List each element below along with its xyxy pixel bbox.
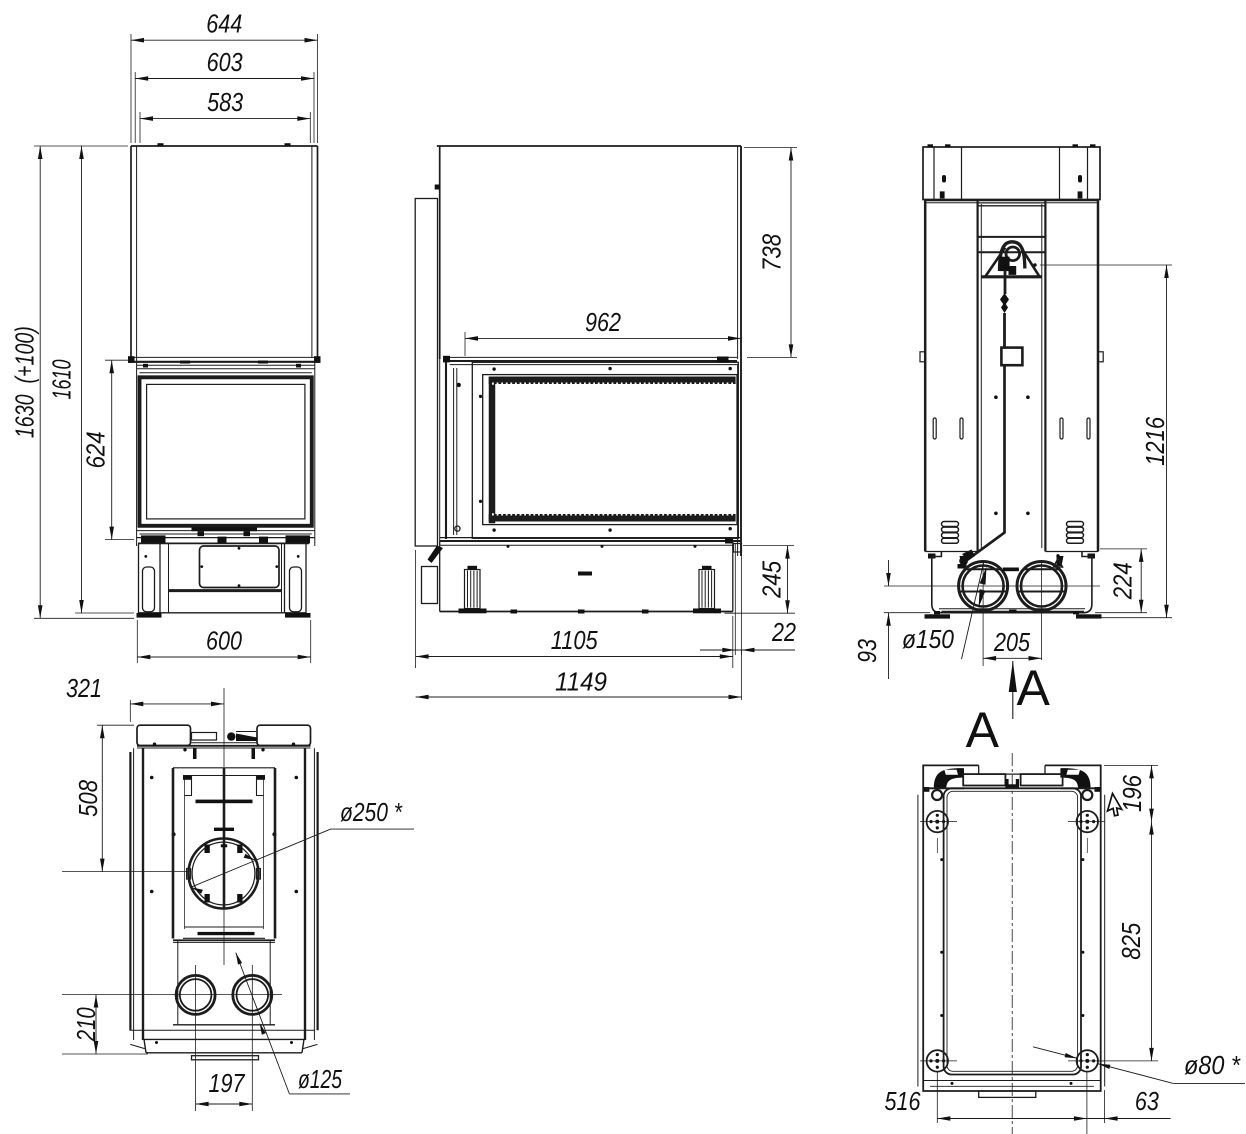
svg-text:ø125: ø125 (298, 1064, 342, 1094)
svg-text:1610: 1610 (47, 359, 77, 399)
svg-text:603: 603 (207, 47, 243, 77)
svg-text:583: 583 (207, 87, 243, 117)
svg-text:A: A (966, 702, 1000, 758)
svg-text:ø150: ø150 (902, 624, 954, 654)
svg-text:508: 508 (73, 779, 103, 816)
svg-text:22: 22 (771, 617, 796, 647)
svg-text:245: 245 (757, 560, 787, 598)
svg-text:ø80 *: ø80 * (1184, 1050, 1241, 1080)
svg-text:1630 (+100): 1630 (+100) (10, 326, 40, 438)
svg-text:63: 63 (1135, 1086, 1159, 1116)
svg-text:600: 600 (206, 626, 242, 656)
svg-text:825: 825 (1116, 922, 1146, 959)
svg-text:196: 196 (1117, 775, 1147, 812)
svg-text:224: 224 (1108, 562, 1138, 600)
svg-text:738: 738 (757, 233, 787, 270)
svg-text:197: 197 (209, 1068, 246, 1098)
svg-text:A: A (1017, 660, 1051, 716)
svg-text:516: 516 (885, 1086, 921, 1116)
svg-text:321: 321 (66, 673, 102, 703)
svg-text:210: 210 (71, 1007, 101, 1042)
svg-text:962: 962 (585, 307, 621, 337)
svg-text:1216: 1216 (1140, 416, 1170, 465)
svg-text:ø250 *: ø250 * (340, 797, 403, 827)
svg-text:644: 644 (206, 9, 242, 39)
svg-text:1149: 1149 (555, 667, 607, 697)
svg-text:205: 205 (993, 627, 1030, 657)
svg-text:93: 93 (852, 639, 882, 663)
svg-text:1105: 1105 (551, 625, 598, 655)
svg-text:624: 624 (81, 431, 111, 468)
